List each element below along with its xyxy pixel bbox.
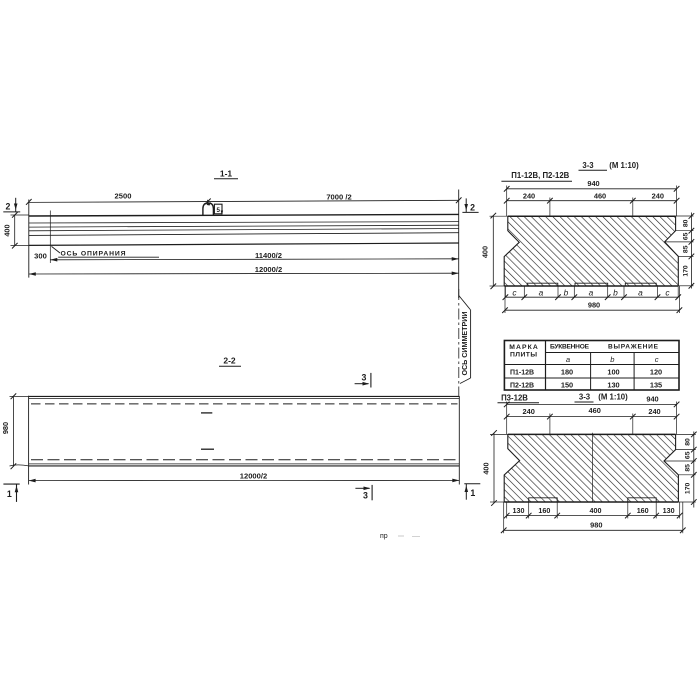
svg-text:МАРКА: МАРКА xyxy=(509,344,538,351)
svg-text:240: 240 xyxy=(523,191,535,200)
svg-text:85: 85 xyxy=(682,245,689,253)
svg-text:П1-12В: П1-12В xyxy=(510,369,534,376)
svg-text:130: 130 xyxy=(607,380,619,389)
svg-text:b: b xyxy=(610,355,614,364)
svg-text:240: 240 xyxy=(648,407,660,416)
svg-text:65: 65 xyxy=(682,232,689,240)
svg-text:130: 130 xyxy=(663,506,675,515)
svg-text:400: 400 xyxy=(481,462,490,474)
svg-text:a: a xyxy=(539,288,544,298)
svg-text:a: a xyxy=(638,288,643,298)
svg-text:980: 980 xyxy=(1,422,10,434)
svg-text:12000/2: 12000/2 xyxy=(255,265,282,274)
svg-text:ВЫРАЖЕНИЕ: ВЫРАЖЕНИЕ xyxy=(608,344,659,351)
svg-text:940: 940 xyxy=(646,395,658,404)
svg-text:170: 170 xyxy=(685,483,692,495)
svg-text:2: 2 xyxy=(6,201,11,211)
svg-text:3-3: 3-3 xyxy=(582,161,594,170)
svg-text:12000/2: 12000/2 xyxy=(240,472,267,481)
svg-text:85: 85 xyxy=(685,464,692,472)
svg-text:120: 120 xyxy=(650,367,662,376)
svg-text:400: 400 xyxy=(2,224,11,236)
svg-text:a: a xyxy=(566,355,570,364)
svg-text:80: 80 xyxy=(685,438,692,446)
svg-text:2: 2 xyxy=(470,203,475,213)
svg-text:130: 130 xyxy=(513,506,525,515)
svg-text:7000 /2: 7000 /2 xyxy=(326,193,351,202)
svg-text:c: c xyxy=(655,355,659,364)
svg-text:2500: 2500 xyxy=(115,191,132,200)
svg-text:135: 135 xyxy=(650,380,662,389)
svg-text:П1-12В, П2-12В: П1-12В, П2-12В xyxy=(511,171,569,180)
svg-text:150: 150 xyxy=(561,380,573,389)
svg-text:П3-12В: П3-12В xyxy=(501,393,528,402)
svg-text:БУКВЕННОЕ: БУКВЕННОЕ xyxy=(550,344,590,351)
svg-text:240: 240 xyxy=(652,191,664,200)
svg-text:240: 240 xyxy=(523,407,535,416)
svg-text:100: 100 xyxy=(607,367,619,376)
svg-text:a: a xyxy=(589,288,594,298)
svg-text:3: 3 xyxy=(362,373,367,383)
svg-text:ПЛИТЫ: ПЛИТЫ xyxy=(510,352,537,359)
svg-text:460: 460 xyxy=(589,406,601,415)
svg-text:160: 160 xyxy=(538,506,550,515)
svg-text:1: 1 xyxy=(7,489,12,499)
svg-text:980: 980 xyxy=(588,300,600,309)
svg-text:400: 400 xyxy=(590,506,602,515)
svg-text:пр: пр xyxy=(380,533,388,540)
svg-text:980: 980 xyxy=(590,521,602,530)
svg-text:(М 1:10): (М 1:10) xyxy=(609,161,639,170)
svg-text:1-1: 1-1 xyxy=(220,168,233,178)
svg-text:b: b xyxy=(564,288,569,298)
svg-text:b: b xyxy=(613,288,618,298)
svg-text:940: 940 xyxy=(587,179,599,188)
svg-text:11400/2: 11400/2 xyxy=(255,251,282,260)
svg-text:300: 300 xyxy=(34,251,47,260)
svg-text:1: 1 xyxy=(470,488,475,498)
svg-text:(М 1:10): (М 1:10) xyxy=(598,393,628,402)
svg-text:460: 460 xyxy=(594,191,606,200)
svg-text:2-2: 2-2 xyxy=(223,356,236,366)
svg-text:180: 180 xyxy=(561,367,573,376)
svg-text:5: 5 xyxy=(216,207,220,214)
svg-text:160: 160 xyxy=(637,506,649,515)
svg-text:65: 65 xyxy=(685,451,692,459)
svg-text:80: 80 xyxy=(682,219,689,227)
svg-text:ОСЬ СИММЕТРИИ: ОСЬ СИММЕТРИИ xyxy=(460,312,469,376)
svg-text:ОСЬ ОПИРАНИЯ: ОСЬ ОПИРАНИЯ xyxy=(61,251,126,258)
svg-text:3-3: 3-3 xyxy=(579,393,591,402)
svg-text:П2-12В: П2-12В xyxy=(510,382,534,389)
svg-text:400: 400 xyxy=(481,246,490,258)
svg-text:170: 170 xyxy=(682,265,689,277)
svg-text:3: 3 xyxy=(363,491,368,501)
